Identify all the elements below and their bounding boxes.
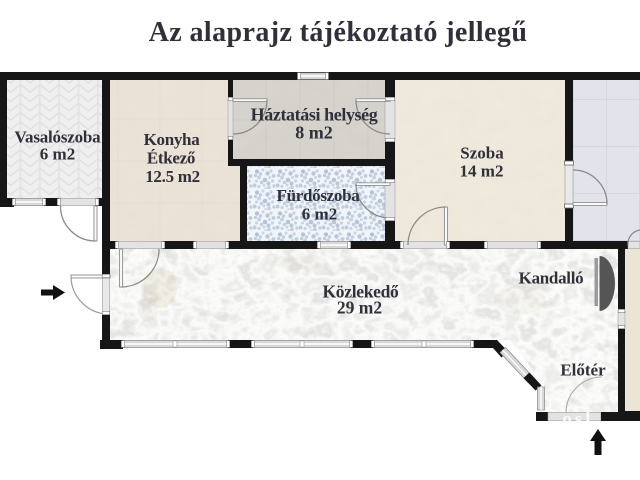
svg-text:osl: osl xyxy=(562,409,593,430)
svg-text:14 m2: 14 m2 xyxy=(460,162,504,181)
svg-text:8 m2: 8 m2 xyxy=(295,123,333,143)
svg-text:12.5 m2: 12.5 m2 xyxy=(145,167,200,186)
svg-text:29 m2: 29 m2 xyxy=(337,298,382,318)
svg-text:Fürdőszoba: Fürdőszoba xyxy=(277,186,361,205)
svg-text:Kandalló: Kandalló xyxy=(519,269,584,288)
svg-text:Előtér: Előtér xyxy=(560,361,606,380)
svg-text:Konyha: Konyha xyxy=(144,130,201,149)
svg-text:Szoba: Szoba xyxy=(460,143,504,162)
svg-text:Az alaprajz tájékoztató jelleg: Az alaprajz tájékoztató jellegű xyxy=(149,17,528,48)
svg-text:Háztatási helység: Háztatási helység xyxy=(251,105,378,125)
svg-text:Étkező: Étkező xyxy=(147,149,196,168)
svg-text:6 m2: 6 m2 xyxy=(40,145,75,164)
svg-text:6 m2: 6 m2 xyxy=(302,205,337,224)
